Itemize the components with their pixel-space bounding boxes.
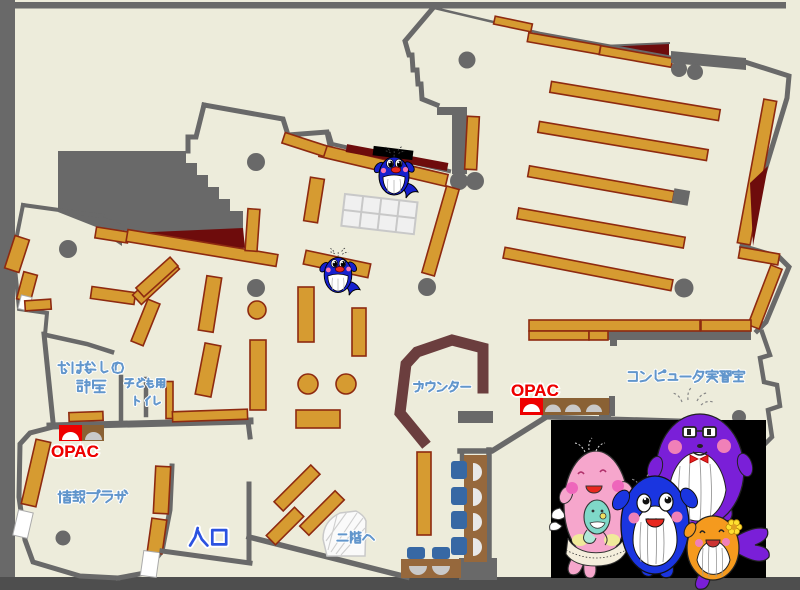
svg-text:OPAC: OPAC [51, 442, 99, 461]
svg-text:OPAC: OPAC [511, 381, 559, 400]
